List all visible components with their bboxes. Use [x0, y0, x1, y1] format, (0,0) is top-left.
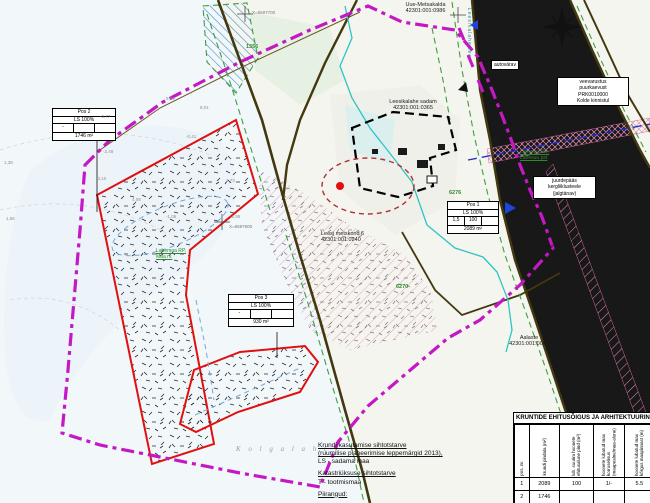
- plot-cells: 1,5 100: [448, 216, 498, 225]
- cadastral-number: 42301:001:0240: [321, 237, 393, 243]
- plot-cell: 1,5: [448, 217, 464, 225]
- coordinate-label: X=6597700: [252, 10, 275, 15]
- spot-height: 1,55: [6, 216, 15, 221]
- cadastral-number: 42301:001:0365: [368, 105, 458, 111]
- parcel-name: Aalaste: [520, 335, 538, 341]
- detail-plan-map: Uue-Metsakalda 42301:001:0986 Leesikalah…: [0, 0, 650, 503]
- col-header-area: krundi pindala (m²): [542, 438, 547, 476]
- street-name-vertical: Leesikalahe tee: [466, 8, 472, 58]
- note-box-juurdepaas: juurdepääs kergliiklusteele (jalgtänav): [533, 176, 596, 199]
- cell: [624, 491, 650, 503]
- plot-cells: -: [229, 309, 293, 318]
- spot-height: -3,10: [96, 176, 106, 181]
- col-header-pos: pos. nr.: [519, 461, 524, 476]
- cell: [594, 491, 624, 503]
- parcel-label-uue-metsakalda: Uue-Metsakalda 42301:001:0986: [388, 2, 463, 15]
- parcel-name: Leesi metskond 6: [321, 231, 364, 237]
- coordinate-label: X=6597600: [229, 224, 252, 229]
- map-legend: Krundi kasutamise sihtotstarve (ruumilis…: [318, 442, 443, 499]
- col-header-height: hoonete lubatud max kõrgus maapinnast (m…: [634, 426, 644, 476]
- plot-cell: [73, 124, 94, 132]
- parcel-number-6276: 6276: [449, 190, 461, 196]
- parcel-label-leesi-metskond: Leesi metskond 6 42301:001:0240: [321, 231, 393, 244]
- spot-height: 5,89: [166, 96, 175, 101]
- note-box-veevarustus: veevarustus puurkaevust PRK0010000 Kolde…: [557, 77, 629, 106]
- sea-name-label: K o l g a l a h t: [236, 445, 329, 453]
- label-lahemaa-rp: Lahemaa RP, Maa rv.: [156, 249, 206, 261]
- label-lahesuu-rd: Lahesuu RD, Lahesuu pst: [520, 150, 565, 162]
- cell: 1/-: [594, 478, 624, 491]
- plot-cell: [481, 217, 498, 225]
- col-header-storeys: hoonete lubatud max korruselisus (maapea…: [601, 426, 617, 476]
- spot-height: 1,38: [4, 160, 13, 165]
- plot-info-box-pos3: Pos 3 LS 100% - 930 m²: [228, 294, 294, 327]
- cadastral-number: 42301:001:0061: [494, 341, 564, 347]
- plot-cells: -: [53, 123, 115, 132]
- plot-area: 1746 m²: [53, 132, 115, 140]
- note-box-autovarav: autovärav: [491, 60, 519, 70]
- cadastral-number: 42301:001:0986: [388, 8, 463, 14]
- parcel-label-kolde: Kolde 42301:001:0421: [575, 139, 650, 152]
- plot-cell: 100: [464, 217, 481, 225]
- parcel-name: Leesikalahe sadam: [389, 99, 436, 105]
- legend-value: T - tootmismaa: [318, 479, 443, 487]
- cadastral-number: 42301:001:0421: [575, 145, 650, 151]
- parcel-number-6270: 6270: [396, 284, 408, 290]
- parcel-label-aalaste: Aalaste 42301:001:0061: [494, 335, 564, 348]
- note-line: Kolde kinnistul: [560, 98, 626, 104]
- plot-cell: -: [53, 124, 73, 132]
- plot-area: 930 m²: [229, 318, 293, 326]
- plot-cell: [250, 310, 272, 318]
- legend-heading: Krundi kasutamise sihtotstarve: [318, 442, 443, 450]
- plot-use: LS 100%: [448, 209, 498, 217]
- plot-cell: -: [229, 310, 250, 318]
- table-header-row: pos. nr. krundi pindala (m²) lub. suurim…: [515, 425, 650, 478]
- spot-height: -1,05: [166, 214, 176, 219]
- plot-area: 2089 m²: [448, 225, 498, 233]
- legend-heading: Piirangud:: [318, 491, 443, 499]
- plot-cell: [94, 124, 115, 132]
- note-line: (jalgtänav): [536, 191, 593, 197]
- cell: 5.5: [624, 478, 650, 491]
- spot-height: -2,48: [103, 149, 113, 154]
- building-rights-table: KRUNTIDE EHITUSÕIGUS JA ARHITEKTUURINÕUD…: [513, 412, 650, 503]
- cell: 100: [560, 478, 594, 491]
- spot-height: -2,95: [230, 214, 240, 219]
- parcel-label-leesikalahe-sadam: Leesikalahe sadam 42301:001:0365: [368, 99, 458, 112]
- table-title: KRUNTIDE EHITUSÕIGUS JA ARHITEKTUURINÕUD…: [514, 413, 650, 424]
- spot-height: 4,08: [132, 197, 141, 202]
- cell: [560, 491, 594, 503]
- legend-heading: (ruumilise planeerimise leppemärgid 2013…: [318, 450, 443, 458]
- spot-height: 2,73: [226, 178, 235, 183]
- plot-info-box-pos1: Pos 1 LS 100% 1,5 100 2089 m²: [447, 201, 499, 234]
- parcel-number-1356: 1356: [246, 44, 258, 50]
- parcel-name: Kolde: [605, 139, 619, 145]
- monument-dot: [336, 182, 344, 190]
- plot-use: LS 100%: [229, 302, 293, 310]
- cell: 2089: [529, 478, 559, 491]
- spot-height: 8,01: [200, 105, 209, 110]
- plot-info-box-pos2: Pos 2 LS 100% - 1746 m²: [52, 108, 116, 141]
- cell: 2: [515, 491, 530, 503]
- col-header-footprint: lub. suurim hoonete ehitusalune pind (m²…: [571, 426, 581, 476]
- cell: 1: [515, 478, 530, 491]
- table-row: 2 1746: [515, 491, 650, 503]
- cell: 1746: [529, 491, 559, 503]
- spot-height: -0,41: [186, 134, 196, 139]
- spot-height: -2,77: [100, 114, 110, 119]
- legend-value: LS - sadama maa: [318, 458, 443, 466]
- parcel-name: Uue-Metsakalda: [405, 2, 445, 8]
- plot-cell: [271, 310, 293, 318]
- green-area-name2: Lahesuu pst: [520, 156, 565, 162]
- table-row: 1 2089 100 1/- 5.5: [515, 478, 650, 491]
- legend-heading: Katastriüksuse sihtotstarve: [318, 470, 443, 478]
- protected-area-name2: Maa rv.: [156, 255, 206, 261]
